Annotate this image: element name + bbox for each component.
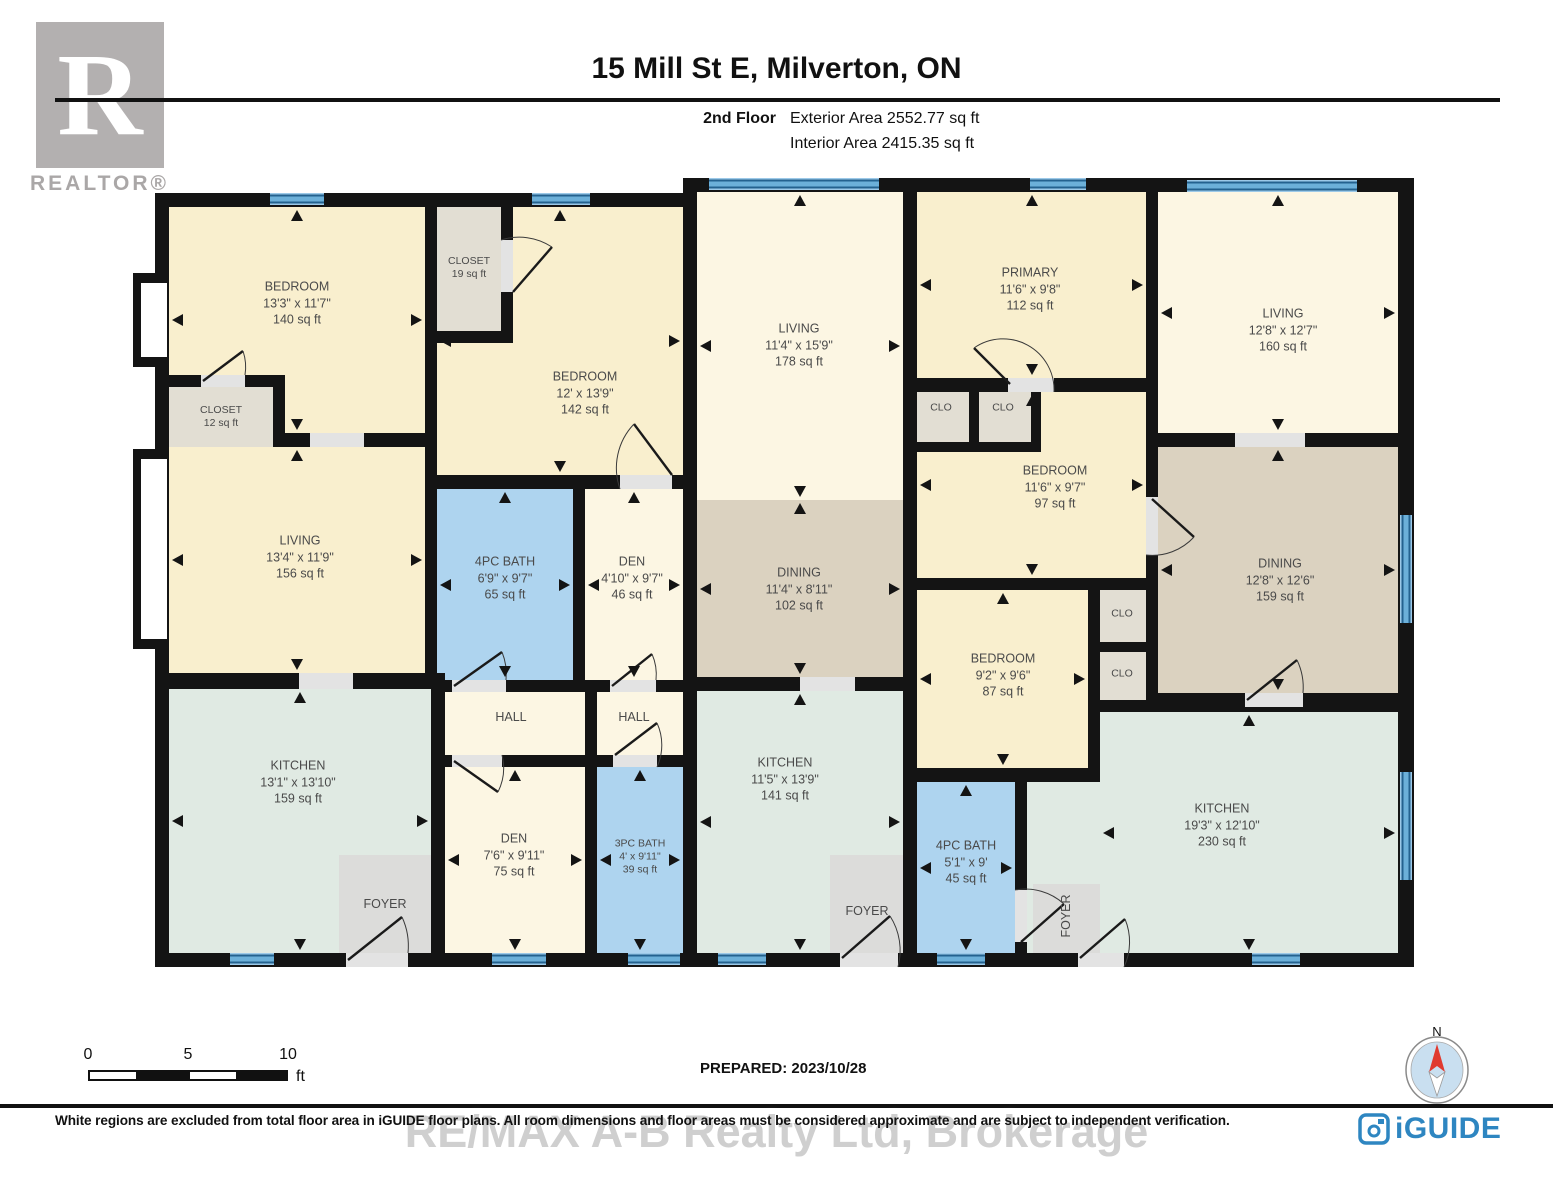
right-arrow-dining-2 <box>1384 564 1395 576</box>
compass-icon <box>1404 1036 1470 1104</box>
down-arrow-den-2 <box>509 939 521 950</box>
right-arrow-living-1 <box>411 554 422 566</box>
label-foyer-1: FOYER <box>363 896 406 913</box>
up-arrow-primary <box>1026 195 1038 206</box>
right-arrow-living-3 <box>1384 307 1395 319</box>
left-arrow-bath-4pc-2 <box>920 862 931 874</box>
down-arrow-bath-4pc-1 <box>499 666 511 677</box>
floor-plan: BEDROOM 13'3" x 11'7" 140 sq ftBEDROOM 1… <box>0 0 1553 1000</box>
up-arrow-bedroom-97 <box>1026 395 1038 406</box>
interior-wall <box>573 489 585 680</box>
left-arrow-dining-2 <box>1161 564 1172 576</box>
down-arrow-bedroom-87 <box>997 754 1009 765</box>
left-arrow-bedroom-87 <box>920 673 931 685</box>
label-bedroom-97: BEDROOM 11'6" x 9'7" 97 sq ft <box>1023 462 1088 512</box>
label-closet-12: CLOSET 12 sq ft <box>200 404 242 430</box>
door-opening <box>1015 890 1027 942</box>
interior-wall <box>917 768 1100 782</box>
door-opening <box>800 677 855 691</box>
up-arrow-living-1 <box>291 450 303 461</box>
interior-wall <box>1088 590 1100 775</box>
label-clo-c: CLO <box>1111 607 1133 620</box>
up-arrow-kitchen-2 <box>794 694 806 705</box>
interior-wall <box>1100 700 1146 712</box>
up-arrow-den-2 <box>509 770 521 781</box>
window <box>709 178 879 190</box>
window <box>270 193 324 205</box>
window <box>937 953 985 965</box>
left-arrow-kitchen-3 <box>1103 827 1114 839</box>
label-bedroom-2: BEDROOM 12' x 13'9" 142 sq ft <box>553 368 618 418</box>
scale-segment <box>238 1070 288 1081</box>
down-arrow-kitchen-2 <box>794 939 806 950</box>
left-arrow-kitchen-1 <box>172 815 183 827</box>
left-arrow-living-2 <box>700 340 711 352</box>
down-arrow-bedroom-97 <box>1026 564 1038 575</box>
right-arrow-primary <box>1132 279 1143 291</box>
label-den-1: DEN 4'10" x 9'7" 46 sq ft <box>601 553 663 603</box>
right-arrow-bath-4pc-1 <box>559 579 570 591</box>
down-arrow-living-2 <box>794 486 806 497</box>
iguide-logo: iGUIDE <box>1358 1112 1501 1146</box>
interior-wall <box>979 442 1041 452</box>
left-arrow-den-1 <box>588 579 599 591</box>
interior-wall <box>273 375 285 447</box>
interior-wall <box>1146 192 1158 707</box>
right-arrow-bedroom-2 <box>669 335 680 347</box>
interior-wall <box>431 673 445 953</box>
interior-wall <box>903 192 917 953</box>
label-kitchen-3: KITCHEN 19'3" x 12'10" 230 sq ft <box>1184 800 1260 850</box>
left-arrow-living-1 <box>172 554 183 566</box>
down-arrow-dining-1 <box>794 663 806 674</box>
window <box>718 953 766 965</box>
door-opening <box>1078 953 1124 967</box>
door-opening <box>201 375 245 387</box>
label-bedroom-87: BEDROOM 9'2" x 9'6" 87 sq ft <box>971 650 1036 700</box>
label-primary: PRIMARY 11'6" x 9'8" 112 sq ft <box>1000 264 1061 314</box>
door-opening <box>501 240 513 292</box>
door-opening <box>1008 378 1054 392</box>
label-kitchen-1: KITCHEN 13'1" x 13'10" 159 sq ft <box>260 757 336 807</box>
right-arrow-kitchen-3 <box>1384 827 1395 839</box>
door-opening <box>1245 693 1303 707</box>
door-opening <box>346 953 408 967</box>
label-bath-3pc: 3PC BATH 4' x 9'11" 39 sq ft <box>615 837 666 876</box>
scale-unit: ft <box>296 1068 305 1086</box>
up-arrow-dining-1 <box>794 503 806 514</box>
left-arrow-bedroom-2 <box>440 335 451 347</box>
down-arrow-den-1 <box>628 666 640 677</box>
iguide-icon <box>1358 1113 1390 1145</box>
door-opening <box>1235 433 1305 447</box>
left-arrow-dining-1 <box>700 583 711 595</box>
window <box>532 193 590 205</box>
label-kitchen-2: KITCHEN 11'5" x 13'9" 141 sq ft <box>751 754 819 804</box>
interior-wall <box>1100 642 1146 652</box>
right-arrow-kitchen-1 <box>417 815 428 827</box>
door-opening <box>1146 497 1158 555</box>
window <box>1030 178 1086 190</box>
room-bedroom-2-ext <box>437 343 513 475</box>
label-dining-2: DINING 12'8" x 12'6" 159 sq ft <box>1246 555 1315 605</box>
down-arrow-primary <box>1026 364 1038 375</box>
right-arrow-bath-4pc-2 <box>1001 862 1012 874</box>
door-opening <box>310 433 364 447</box>
door-opening <box>613 755 657 767</box>
up-arrow-bath-3pc <box>634 770 646 781</box>
door-opening <box>452 680 506 692</box>
scale-label-10: 10 <box>279 1046 297 1064</box>
up-arrow-bedroom-2 <box>554 210 566 221</box>
iguide-wordmark: iGUIDE <box>1395 1112 1501 1146</box>
left-arrow-primary <box>920 279 931 291</box>
down-arrow-living-3 <box>1272 419 1284 430</box>
interior-wall <box>585 692 597 755</box>
up-arrow-bath-4pc-1 <box>499 492 511 503</box>
wall-niche-void <box>141 459 167 639</box>
window <box>1187 180 1357 192</box>
right-arrow-bedroom-87 <box>1074 673 1085 685</box>
right-arrow-kitchen-2 <box>889 816 900 828</box>
window <box>628 953 680 965</box>
window <box>230 953 274 965</box>
door-opening <box>840 953 898 967</box>
interior-wall <box>969 392 979 442</box>
label-hall-2: HALL <box>618 709 649 726</box>
left-arrow-bedroom-97 <box>920 479 931 491</box>
right-arrow-den-1 <box>669 579 680 591</box>
label-living-2: LIVING 11'4" x 15'9" 178 sq ft <box>765 320 833 370</box>
label-den-2: DEN 7'6" x 9'11" 75 sq ft <box>484 830 545 880</box>
down-arrow-bedroom-2 <box>554 461 566 472</box>
up-arrow-bedroom-87 <box>997 593 1009 604</box>
left-arrow-bedroom-1 <box>172 314 183 326</box>
window <box>1400 515 1412 623</box>
footer-disclaimer: White regions are excluded from total fl… <box>55 1113 1230 1128</box>
up-arrow-living-2 <box>794 195 806 206</box>
label-foyer-2: FOYER <box>845 903 888 920</box>
down-arrow-kitchen-3 <box>1243 939 1255 950</box>
scale-segment <box>88 1070 138 1081</box>
left-arrow-living-3 <box>1161 307 1172 319</box>
down-arrow-bath-4pc-2 <box>960 939 972 950</box>
scale-segment <box>138 1070 188 1081</box>
label-clo-d: CLO <box>1111 667 1133 680</box>
window <box>1252 953 1300 965</box>
label-clo-b: CLO <box>992 401 1014 414</box>
up-arrow-bath-4pc-2 <box>960 785 972 796</box>
label-bath-4pc-2: 4PC BATH 5'1" x 9' 45 sq ft <box>936 837 996 887</box>
scale-bar: 0510ft <box>0 1040 340 1100</box>
left-arrow-den-2 <box>448 854 459 866</box>
scale-segment <box>188 1070 238 1081</box>
down-arrow-living-1 <box>291 659 303 670</box>
up-arrow-living-3 <box>1272 195 1284 206</box>
interior-wall <box>917 578 1146 590</box>
door-opening <box>299 673 353 689</box>
door-opening <box>452 755 502 767</box>
up-arrow-bedroom-1 <box>291 210 303 221</box>
right-arrow-bedroom-1 <box>411 314 422 326</box>
label-bath-4pc-1: 4PC BATH 6'9" x 9'7" 65 sq ft <box>475 553 535 603</box>
up-arrow-den-1 <box>628 492 640 503</box>
label-dining-1: DINING 11'4" x 8'11" 102 sq ft <box>766 564 833 614</box>
right-arrow-dining-1 <box>889 583 900 595</box>
door-opening <box>620 475 672 489</box>
interior-wall <box>585 767 597 953</box>
window <box>1400 772 1412 880</box>
left-arrow-bath-4pc-1 <box>440 579 451 591</box>
prepared-date: PREPARED: 2023/10/28 <box>700 1060 866 1077</box>
wall-niche-void <box>141 283 167 357</box>
scale-label-5: 5 <box>184 1046 193 1064</box>
window <box>492 953 546 965</box>
right-arrow-bath-3pc <box>669 854 680 866</box>
right-arrow-living-2 <box>889 340 900 352</box>
scale-label-0: 0 <box>84 1046 93 1064</box>
label-hall-1: HALL <box>495 709 526 726</box>
room-clo-a <box>917 392 969 442</box>
label-closet-19: CLOSET 19 sq ft <box>448 255 490 281</box>
room-bedroom-2 <box>513 207 683 475</box>
down-arrow-kitchen-1 <box>294 939 306 950</box>
label-living-3: LIVING 12'8" x 12'7" 160 sq ft <box>1249 305 1318 355</box>
label-living-1: LIVING 13'4" x 11'9" 156 sq ft <box>266 532 334 582</box>
up-arrow-kitchen-3 <box>1243 715 1255 726</box>
right-arrow-bedroom-97 <box>1132 479 1143 491</box>
label-bedroom-1: BEDROOM 13'3" x 11'7" 140 sq ft <box>263 278 331 328</box>
interior-wall <box>917 442 979 452</box>
down-arrow-bath-3pc <box>634 939 646 950</box>
label-foyer-3: FOYER <box>1058 894 1075 937</box>
up-arrow-kitchen-1 <box>294 692 306 703</box>
label-clo-a: CLO <box>930 401 952 414</box>
left-arrow-kitchen-2 <box>700 816 711 828</box>
down-arrow-dining-2 <box>1272 679 1284 690</box>
room-clo-b <box>979 392 1031 442</box>
door-opening <box>610 680 656 692</box>
right-arrow-den-2 <box>571 854 582 866</box>
left-arrow-bath-3pc <box>600 854 611 866</box>
down-arrow-bedroom-1 <box>291 419 303 430</box>
up-arrow-dining-2 <box>1272 450 1284 461</box>
